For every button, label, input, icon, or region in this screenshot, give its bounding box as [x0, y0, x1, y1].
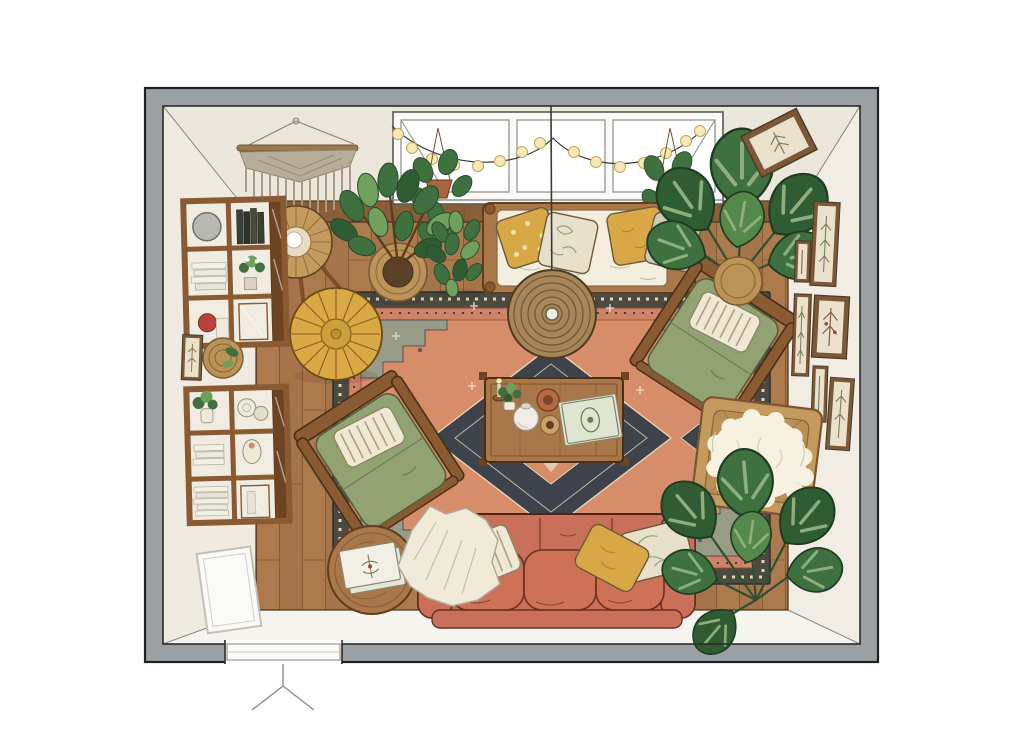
tall-book-stack [193, 486, 229, 516]
coffee-table [479, 372, 629, 466]
gallery-frame-4 [811, 295, 849, 359]
gallery-frame-1 [810, 201, 840, 286]
bookshelf-lower [186, 387, 289, 524]
floor-plan-svg [0, 0, 1024, 747]
gallery-frame-6 [826, 377, 855, 450]
table-books [558, 394, 622, 447]
window-pane-center [517, 120, 605, 192]
gallery-frame-3 [792, 294, 812, 377]
woven-wall-plate [203, 338, 243, 378]
left-wall-frame [181, 335, 203, 381]
sofa-front-rail [432, 610, 682, 628]
side-table-books [339, 541, 406, 595]
gallery-frame-2 [794, 241, 810, 282]
small-bowl [541, 416, 560, 435]
red-vase [198, 314, 216, 332]
terracotta-sofa [398, 506, 695, 628]
terracotta-bowl [537, 389, 559, 411]
bookshelf-upper [183, 199, 287, 347]
lamp-bulb [286, 232, 302, 248]
leaning-panel [197, 546, 262, 633]
round-mirror [192, 212, 221, 241]
floor-plan-illustration [0, 0, 1024, 747]
daybed-pillow-floral-1 [537, 211, 599, 275]
